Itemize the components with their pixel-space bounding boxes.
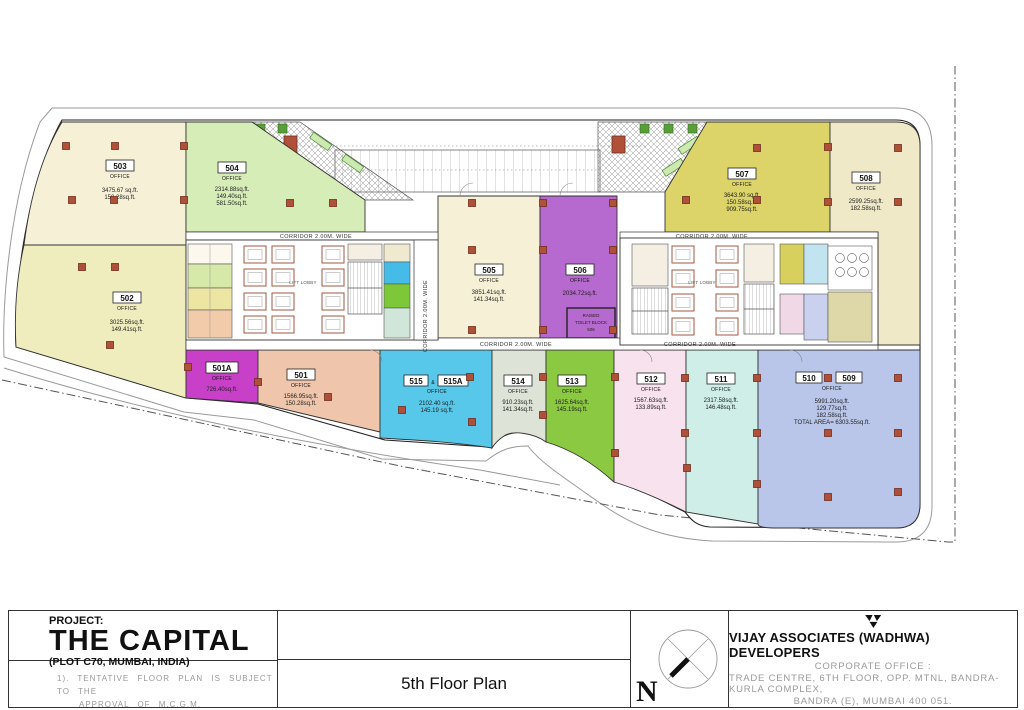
toilet-room — [804, 244, 828, 284]
unit-512-type: OFFICE — [641, 387, 661, 393]
unit-512-area-1: 1567.63sq.ft. — [634, 398, 669, 404]
developer-logo-icon — [854, 615, 892, 628]
unit-501-number: 501 — [294, 371, 308, 380]
unit-514: 514 OFFICE 910.23sq.ft. 141.34sq.ft. — [492, 350, 546, 448]
unit-513: 513 OFFICE 1625.64sq.ft. 145.19sq.ft. — [546, 350, 614, 482]
column — [325, 394, 332, 401]
unit-504-area-3: 581.50sq.ft. — [216, 201, 248, 207]
unit-508-type: OFFICE — [856, 186, 876, 192]
unit-515-area — [380, 350, 492, 448]
unit-510-area-1: 5991.20sq.ft. — [815, 399, 850, 405]
corporate-office-label: CORPORATE OFFICE : — [815, 661, 932, 672]
unit-515-type: OFFICE — [427, 389, 447, 395]
title-block-project-cell: PROJECT: THE CAPITAL (PLOT C70, MUMBAI, … — [9, 611, 278, 707]
column — [112, 143, 119, 150]
unit-501-area-1: 1566.95sq.ft. — [284, 394, 319, 400]
unit-503-number: 503 — [113, 162, 127, 171]
unit-501A-number: 501A — [212, 364, 231, 373]
unit-515-area-2: 145.19 sq.ft. — [420, 408, 453, 414]
lift-box — [244, 316, 266, 333]
unit-513-type: OFFICE — [562, 389, 582, 395]
column — [112, 264, 119, 271]
project-name: THE CAPITAL — [49, 627, 277, 656]
column — [683, 197, 690, 204]
column — [469, 200, 476, 207]
toilet-room — [384, 308, 410, 338]
toilet-room — [384, 284, 410, 308]
column — [754, 145, 761, 152]
lift-box — [322, 246, 344, 263]
column — [255, 379, 262, 386]
unit-509-number: 509 — [842, 374, 856, 383]
service-room — [632, 244, 668, 286]
column — [895, 199, 902, 206]
unit-504-area-2: 149.40sq.ft. — [216, 194, 248, 200]
unit-504-type: OFFICE — [222, 176, 242, 182]
unit-513-area — [546, 350, 614, 482]
toilet-room — [384, 244, 410, 262]
service-room — [828, 292, 872, 342]
unit-508-number: 508 — [859, 174, 873, 183]
column — [610, 327, 617, 334]
unit-510-type: OFFICE — [822, 386, 842, 392]
lift-box — [322, 269, 344, 286]
empty-cell — [278, 611, 630, 660]
unit-515-515A: 515 & 515A OFFICE 2102.40 sq.ft. 145.19 … — [380, 350, 492, 448]
core-left: LIFT LOBBY CORRIDOR 2.00M. WIDE — [186, 240, 438, 352]
unit-501A-area-1: 726.40sq.ft. — [206, 387, 238, 393]
column — [610, 247, 617, 254]
unit-501A: 501A OFFICE 726.40sq.ft. — [186, 350, 258, 403]
column — [79, 264, 86, 271]
unit-510-number: 510 — [802, 374, 816, 383]
unit-513-area-2: 145.19sq.ft. — [556, 407, 588, 413]
raised-toilet-line-2: TOILET BLOCK — [575, 320, 607, 325]
lift-box — [672, 294, 694, 311]
unit-505-area-1: 3851.41sq.ft. — [472, 290, 507, 296]
unit-511-area-2: 146.48sq.ft. — [705, 405, 737, 411]
title-block-sheet-cell: 5th Floor Plan — [278, 611, 631, 707]
unit-507-type: OFFICE — [732, 182, 752, 188]
note-line-1: 1). TENTATIVE FLOOR PLAN IS SUBJECT TO T… — [57, 673, 277, 699]
unit-512-area-2: 133.89sq.ft. — [635, 405, 667, 411]
unit-501A-type: OFFICE — [212, 376, 232, 382]
unit-515A-number: 515A — [443, 377, 462, 386]
column — [754, 430, 761, 437]
unit-503: 503 OFFICE 3475.67 sq.ft. 150.28sq.ft. — [24, 122, 186, 245]
column — [330, 200, 337, 207]
unit-511-area-1: 2317.58sq.ft. — [704, 398, 739, 404]
column — [754, 197, 761, 204]
column — [399, 407, 406, 414]
column — [63, 143, 70, 150]
north-letter: N — [636, 677, 658, 707]
service-room — [744, 244, 774, 282]
note-line-2: APPROVAL OF M.C.G.M. — [57, 699, 277, 710]
unit-506: 506 OFFICE 2034.72sq.ft. RAISED TOILET B… — [540, 196, 617, 338]
lift-box — [272, 316, 294, 333]
corridor-label-bottom-left: CORRIDOR 2.00M. WIDE — [480, 342, 552, 348]
unit-506-number: 506 — [573, 266, 587, 275]
unit-514-number: 514 — [511, 377, 525, 386]
notes: 1). TENTATIVE FLOOR PLAN IS SUBJECT TO T… — [9, 661, 277, 710]
lift-box — [244, 246, 266, 263]
sheet-title: 5th Floor Plan — [278, 660, 630, 707]
column — [825, 430, 832, 437]
column — [467, 374, 474, 381]
column — [612, 450, 619, 457]
lift-box — [716, 246, 738, 263]
unit-510-area-4: TOTAL AREA= 6303.55sq.ft. — [794, 420, 870, 426]
unit-506-area-1: 2034.72sq.ft. — [563, 291, 598, 297]
unit-513-number: 513 — [565, 377, 579, 386]
column — [181, 143, 188, 150]
lift-box — [244, 269, 266, 286]
unit-515-number: 515 — [409, 377, 423, 386]
unit-503-type: OFFICE — [110, 174, 130, 180]
lift-box — [672, 246, 694, 263]
developer-name: VIJAY ASSOCIATES (WADHWA) DEVELOPERS — [729, 630, 1017, 660]
corridor-label-bottom-right: CORRIDOR 2.00M. WIDE — [664, 342, 736, 348]
unit-512: 512 OFFICE 1567.63sq.ft. 133.89sq.ft. — [614, 350, 686, 512]
column — [895, 375, 902, 382]
unit-510-area-3: 182.58sq.ft. — [816, 413, 848, 419]
unit-504-number: 504 — [225, 164, 239, 173]
corridor-label-top-right: CORRIDOR 2.00M. WIDE — [676, 234, 748, 240]
column — [682, 430, 689, 437]
lift-lobby-label-left: LIFT LOBBY — [289, 280, 316, 285]
lift-box — [272, 293, 294, 310]
unit-515-area-1: 2102.40 sq.ft. — [419, 401, 456, 407]
lift-box — [322, 293, 344, 310]
column — [610, 200, 617, 207]
unit-501-area-2: 150.28sq.ft. — [285, 401, 317, 407]
unit-511-type: OFFICE — [711, 387, 731, 393]
unit-505-number: 505 — [482, 266, 496, 275]
unit-512-number: 512 — [644, 375, 658, 384]
unit-514-type: OFFICE — [508, 389, 528, 395]
column — [185, 364, 192, 371]
column — [895, 489, 902, 496]
unit-502-area — [15, 245, 186, 398]
unit-505-type: OFFICE — [479, 278, 499, 284]
column — [469, 247, 476, 254]
lift-box — [244, 293, 266, 310]
core-right: LIFT LOBBY — [620, 238, 878, 345]
column — [754, 375, 761, 382]
column — [107, 342, 114, 349]
unit-505-area-2: 141.34sq.ft. — [473, 297, 505, 303]
column — [612, 374, 619, 381]
column — [684, 465, 691, 472]
column — [825, 199, 832, 206]
column — [540, 374, 547, 381]
raised-toilet-line-1: RAISED — [583, 313, 601, 318]
unit-514-area-2: 141.34sq.ft. — [502, 407, 534, 413]
unit-508-area-1: 2599.25sq.ft. — [849, 199, 884, 205]
toilet-room — [384, 262, 410, 284]
unit-506-type: OFFICE — [570, 278, 590, 284]
title-block-compass-cell: N — [631, 611, 729, 707]
unit-503-area-2: 150.28sq.ft. — [104, 195, 136, 201]
floor-plan-drawing: 503 OFFICE 3475.67 sq.ft. 150.28sq.ft. 5… — [0, 0, 1024, 610]
column — [111, 197, 118, 204]
column — [825, 144, 832, 151]
unit-502-type: OFFICE — [117, 306, 137, 312]
column — [540, 247, 547, 254]
lift-box — [716, 318, 738, 335]
address-line-1: TRADE CENTRE, 6TH FLOOR, OPP. MTNL, BAND… — [729, 673, 1017, 695]
lift-box — [272, 246, 294, 263]
lift-box — [716, 294, 738, 311]
unit-507-number: 507 — [735, 170, 749, 179]
unit-511-number: 511 — [715, 375, 728, 384]
unit-503-area — [24, 122, 186, 245]
lift-box — [672, 318, 694, 335]
lift-box — [322, 316, 344, 333]
column — [287, 200, 294, 207]
unit-502-area-1: 3025.56sq.ft. — [110, 320, 145, 326]
corridor-label-vertical: CORRIDOR 2.00M. WIDE — [423, 280, 429, 352]
unit-501-type: OFFICE — [291, 383, 311, 389]
column — [825, 375, 832, 382]
column — [69, 197, 76, 204]
toilet-room — [804, 294, 828, 340]
unit-507-area-3: 909.75sq.ft. — [726, 207, 758, 213]
unit-511: 511 OFFICE 2317.58sq.ft. 146.48sq.ft. — [686, 350, 758, 524]
unit-502: 502 OFFICE 3025.56sq.ft. 149.41sq.ft. — [15, 245, 186, 398]
unit-514-area — [492, 350, 546, 448]
unit-513-area-1: 1625.64sq.ft. — [555, 400, 590, 406]
pillar-block — [612, 136, 625, 153]
title-block: PROJECT: THE CAPITAL (PLOT C70, MUMBAI, … — [8, 610, 1018, 708]
unit-514-area-1: 910.23sq.ft. — [502, 400, 534, 406]
unit-510-area-2: 129.77sq.ft. — [816, 406, 848, 412]
toilet-room — [780, 294, 804, 334]
column — [469, 327, 476, 334]
unit-504-area-1: 2314.88sq.ft. — [215, 187, 250, 193]
lift-lobby-label-right: LIFT LOBBY — [688, 280, 715, 285]
unit-502-number: 502 — [120, 294, 134, 303]
toilet-room — [780, 244, 804, 284]
lift-box — [716, 270, 738, 287]
column — [469, 419, 476, 426]
drawing-sheet: 503 OFFICE 3475.67 sq.ft. 150.28sq.ft. 5… — [0, 0, 1024, 710]
unit-505: 505 OFFICE 3851.41sq.ft. 141.34sq.ft. — [438, 196, 540, 338]
column — [895, 145, 902, 152]
column — [895, 430, 902, 437]
service-room — [348, 244, 382, 260]
corridor-label-top-left: CORRIDOR 2.00M. WIDE — [280, 234, 352, 240]
column — [754, 481, 761, 488]
column — [540, 200, 547, 207]
raised-toilet-line-3: 506 — [587, 327, 595, 332]
address-line-2: BANDRA (E), MUMBAI 400 051. — [794, 696, 953, 707]
column — [682, 375, 689, 382]
column — [181, 197, 188, 204]
column — [540, 412, 547, 419]
column — [540, 327, 547, 334]
unit-508-area-2: 182.58sq.ft. — [850, 206, 882, 212]
column — [825, 494, 832, 501]
title-block-developer-cell: VIJAY ASSOCIATES (WADHWA) DEVELOPERS COR… — [729, 611, 1017, 707]
unit-503-area-1: 3475.67 sq.ft. — [102, 188, 139, 194]
unit-502-area-2: 149.41sq.ft. — [111, 327, 143, 333]
